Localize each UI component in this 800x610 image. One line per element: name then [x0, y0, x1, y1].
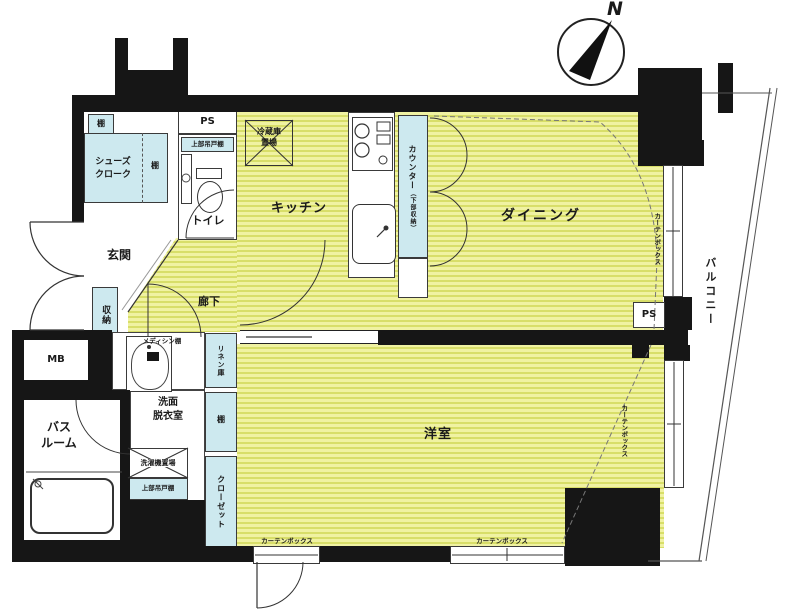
entrance-door-arc-upper [30, 222, 84, 276]
wall-bottom-left [12, 546, 253, 562]
window-south-right [450, 546, 565, 564]
bathtub [30, 478, 114, 534]
toilet-tank [196, 168, 222, 179]
kitchen-label: キッチン [268, 199, 330, 219]
vanity-basin [131, 342, 169, 390]
floor-corridor [128, 238, 237, 332]
shoe-closet-label-line1: シューズ [95, 157, 131, 167]
toilet-label: トイレ [186, 213, 230, 229]
shelf-label-shoe: 棚 [144, 158, 166, 174]
curtain-box-label-western: カーテンボックス [617, 392, 629, 470]
counter-label-sub: （下部収納） [409, 190, 416, 232]
ps-top-label: PS [178, 112, 237, 132]
medicine-shelf-box [147, 352, 159, 361]
shelf-label-top: 棚 [88, 115, 114, 133]
curtain-box-label-south-right: カーテンボックス [462, 536, 542, 547]
wall-corner-ne-step [638, 140, 704, 166]
fridge-label-line2: 置場 [261, 138, 277, 147]
entrance-label: 玄関 [98, 248, 140, 264]
wall-balcony-pillar [718, 63, 733, 113]
kitchen-sink [352, 204, 396, 264]
curtain-box-label-dining: カーテンボックス [650, 200, 662, 278]
toilet-bowl [197, 181, 223, 213]
wall-stub-block [115, 70, 188, 112]
counter-label-main: カウンター [408, 145, 417, 190]
window-south-left [253, 546, 320, 564]
wash-hanging-label: 上部吊戸棚 [128, 480, 188, 498]
ps-right-label: PS [633, 303, 665, 327]
compass-circle [558, 19, 624, 85]
shoe-closet-label-line2: クローク [95, 170, 131, 180]
corridor-label: 廊下 [188, 294, 230, 310]
sliding-door-western [240, 330, 378, 344]
window-dining-east [663, 165, 683, 297]
balcony-label: バルコニー [701, 250, 718, 334]
wall-divider [378, 330, 688, 345]
floor-kitchen-dining [237, 112, 663, 332]
window-western-east [664, 360, 684, 488]
fridge-label-line1: 冷蔵庫 [257, 127, 281, 136]
wall-dining-below-window [664, 297, 692, 330]
counter-cabinet [398, 258, 428, 298]
compass-needle [569, 20, 612, 80]
shoe-closet-label: シューズ クローク [84, 156, 142, 181]
storage-label: 収納 [94, 293, 116, 337]
wall-corner-ne [638, 68, 702, 142]
bath-label-line1: バス [47, 420, 71, 434]
wall-western-above-window [664, 345, 690, 361]
fridge-label: 冷蔵庫 置場 [245, 126, 293, 148]
toilet-side-counter [181, 154, 192, 204]
curtain-box-label-south-left: カーテンボックス [248, 536, 326, 547]
western-room-label: 洋室 [415, 425, 461, 445]
mb-label: MB [24, 348, 88, 372]
closet-label: クローゼット [210, 462, 232, 542]
wall-left [72, 95, 84, 222]
washroom-label: 洗面 脱衣室 [138, 396, 198, 423]
bath-label: バス ルーム [30, 420, 88, 451]
washroom-label-line1: 洗面 [158, 397, 178, 408]
washer-label-text: 洗濯機置場 [140, 459, 177, 467]
dining-label: ダイニング [495, 205, 587, 227]
toilet-hanging-label: 上部吊戸棚 [181, 138, 234, 151]
wall-bottom-mid [320, 546, 450, 562]
counter-label: カウンター（下部収納） [403, 122, 422, 254]
washroom-label-line2: 脱衣室 [153, 411, 183, 422]
bath-label-line2: ルーム [41, 436, 77, 450]
linen-label: リネン庫 [210, 337, 232, 385]
compass-north-label: N [602, 0, 628, 21]
entrance-door-arc-lower [30, 276, 84, 330]
stove [352, 117, 393, 171]
medicine-label: メディシン棚 [134, 336, 190, 348]
floorplan-canvas: N バルコニー ダイニング キッチン 洋室 廊下 玄関 トイレ バス ルーム 洗… [0, 0, 800, 610]
wall-corner-se [565, 488, 660, 566]
washer-label: 洗濯機置場 [128, 456, 188, 470]
wall-wash-block [128, 500, 205, 546]
south-door-arc [257, 562, 303, 608]
wall-step-western [632, 345, 649, 358]
shelf-label-mid: 棚 [205, 412, 237, 428]
